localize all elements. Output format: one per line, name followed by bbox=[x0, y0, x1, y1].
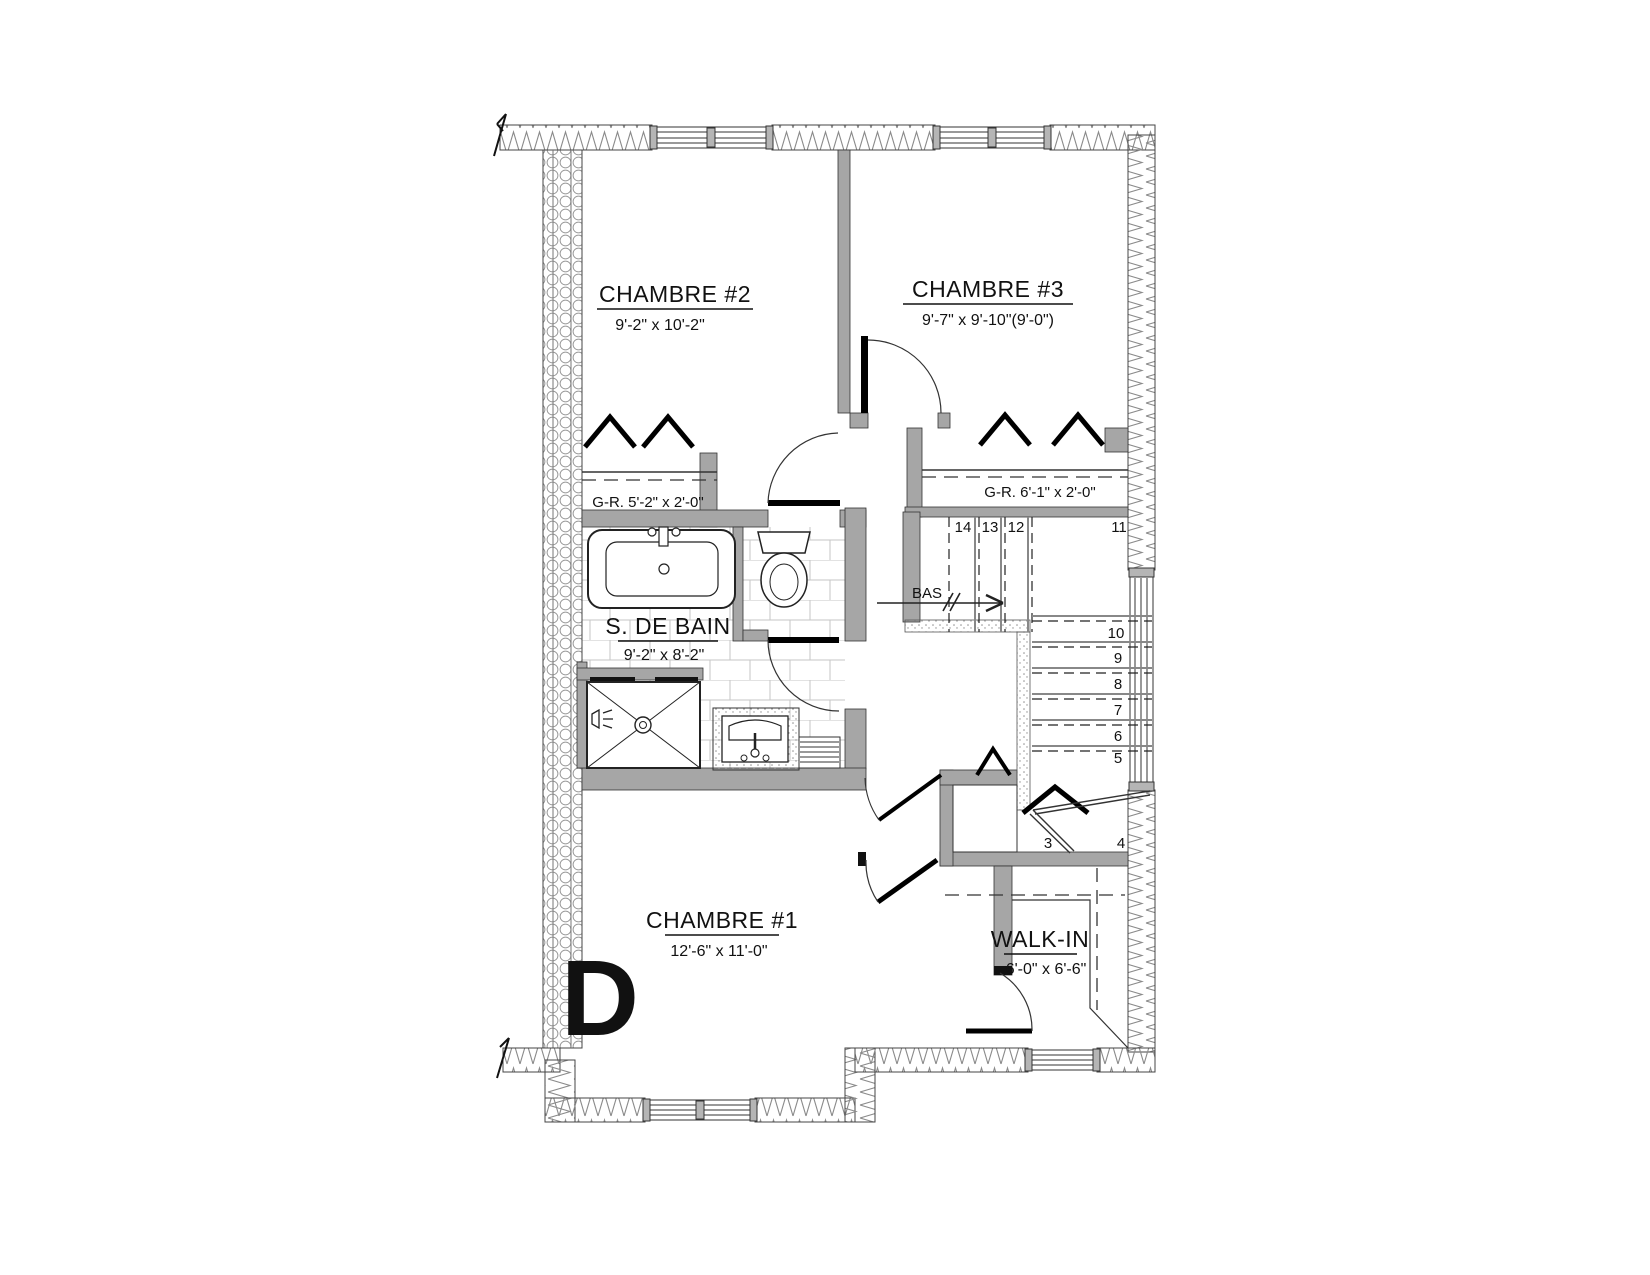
walkin-name: WALK-IN bbox=[991, 926, 1090, 952]
wall-bath-east-upper bbox=[845, 508, 866, 641]
bathtub bbox=[588, 527, 735, 608]
chambre2-dims: 9'-2" x 10'-2" bbox=[615, 317, 705, 334]
tread-14: 14 bbox=[955, 519, 972, 536]
wall-south-long bbox=[940, 852, 1128, 866]
wall-ch3-closet-west bbox=[907, 428, 922, 517]
window-top-1 bbox=[650, 126, 773, 149]
walkin-dims: 6'-0" x 6'-6" bbox=[1006, 961, 1087, 978]
wall-bath-south bbox=[582, 768, 866, 790]
chambre1-dims: 12'-6" x 11'-0" bbox=[670, 943, 767, 960]
linen-closet-interior bbox=[953, 785, 1017, 852]
sdebain-dims: 9'-2" x 8'-2" bbox=[624, 647, 705, 664]
tread-9: 9 bbox=[1114, 650, 1122, 667]
wall-hall-north-right bbox=[938, 413, 950, 428]
wall-walkin-west bbox=[994, 866, 1012, 975]
wall-stair-west bbox=[903, 512, 920, 622]
window-stairwell-right bbox=[1129, 568, 1154, 791]
tread-4: 4 bbox=[1117, 835, 1125, 852]
tread-6: 6 bbox=[1114, 728, 1122, 745]
sdebain-name: S. DE BAIN bbox=[605, 613, 730, 639]
floorplan-drawing: BAS 14 13 12 11 10 9 8 7 6 5 4 3 bbox=[0, 0, 1650, 1275]
floor-vent-grille bbox=[799, 737, 840, 768]
tread-13: 13 bbox=[982, 519, 999, 536]
wall-bath-north bbox=[582, 510, 768, 527]
unit-letter: D bbox=[561, 937, 639, 1058]
tread-5: 5 bbox=[1114, 750, 1122, 767]
window-walkin bbox=[1025, 1049, 1100, 1071]
wall-bath-east-lower bbox=[845, 709, 866, 769]
gr-ch2-label: G-R. 5'-2" x 2'-0" bbox=[592, 494, 703, 511]
wall-hall-north-left bbox=[850, 413, 868, 428]
tread-10: 10 bbox=[1108, 625, 1125, 642]
tread-3: 3 bbox=[1044, 835, 1052, 852]
window-chambre1 bbox=[643, 1099, 757, 1121]
wall-ch3-closet-stub bbox=[1105, 428, 1128, 452]
tread-8: 8 bbox=[1114, 676, 1122, 693]
window-top-2 bbox=[933, 126, 1051, 149]
tread-11: 11 bbox=[1111, 519, 1127, 536]
shower bbox=[587, 682, 700, 768]
wall-ch2-ch3-divider bbox=[838, 150, 850, 413]
chambre2-name: CHAMBRE #2 bbox=[599, 281, 751, 307]
gr-ch3-label: G-R. 6'-1" x 2'-0" bbox=[984, 484, 1095, 501]
stair-bas-label: BAS bbox=[912, 585, 942, 602]
chambre1-name: CHAMBRE #1 bbox=[646, 907, 798, 933]
toilet bbox=[758, 532, 810, 607]
tread-12: 12 bbox=[1008, 519, 1025, 536]
wall-ch3-closet-bottom bbox=[905, 507, 1128, 517]
floorplan-page: BAS 14 13 12 11 10 9 8 7 6 5 4 3 bbox=[0, 0, 1650, 1275]
vanity bbox=[713, 708, 799, 770]
tread-7: 7 bbox=[1114, 702, 1122, 719]
chambre3-name: CHAMBRE #3 bbox=[912, 276, 1064, 302]
wall-nook-south-left bbox=[743, 630, 768, 641]
chambre3-dims: 9'-7" x 9'-10"(9'-0") bbox=[922, 312, 1054, 329]
